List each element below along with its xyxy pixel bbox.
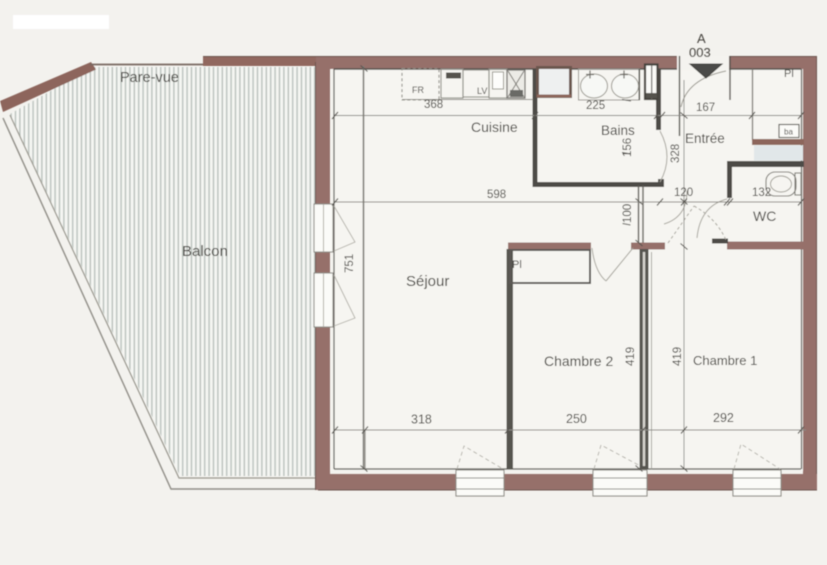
svg-text:FR: FR bbox=[412, 85, 424, 95]
svg-text:368: 368 bbox=[424, 99, 443, 111]
svg-text:LV: LV bbox=[477, 86, 487, 96]
svg-text:156: 156 bbox=[622, 138, 634, 157]
svg-text:120: 120 bbox=[674, 187, 693, 199]
svg-text:WC: WC bbox=[753, 208, 776, 224]
svg-text:Cuisine: Cuisine bbox=[471, 119, 518, 135]
svg-text:318: 318 bbox=[411, 413, 432, 427]
svg-text:132: 132 bbox=[752, 187, 771, 199]
svg-text:Balcon: Balcon bbox=[182, 243, 228, 260]
svg-text:328: 328 bbox=[670, 144, 682, 163]
svg-text:Bains: Bains bbox=[601, 123, 635, 138]
svg-text:751: 751 bbox=[344, 254, 356, 273]
svg-text:A: A bbox=[697, 31, 706, 46]
svg-text:Chambre 1: Chambre 1 bbox=[693, 353, 757, 368]
svg-text:598: 598 bbox=[487, 189, 506, 201]
svg-text:Pare-vue: Pare-vue bbox=[120, 70, 179, 86]
svg-text:Pl: Pl bbox=[784, 68, 794, 80]
svg-text:225: 225 bbox=[586, 100, 605, 112]
svg-text:ba: ba bbox=[784, 128, 793, 137]
svg-text:100: 100 bbox=[622, 204, 634, 223]
svg-text:Pl: Pl bbox=[512, 259, 522, 271]
svg-text:Séjour: Séjour bbox=[406, 273, 449, 290]
svg-text:Entrée: Entrée bbox=[685, 131, 725, 146]
svg-text:003: 003 bbox=[689, 45, 711, 60]
svg-text:167: 167 bbox=[696, 102, 715, 114]
svg-text:250: 250 bbox=[566, 412, 587, 426]
svg-text:Chambre 2: Chambre 2 bbox=[544, 353, 613, 369]
svg-text:419: 419 bbox=[625, 347, 637, 366]
svg-text:419: 419 bbox=[672, 347, 684, 366]
svg-text:292: 292 bbox=[713, 411, 734, 425]
